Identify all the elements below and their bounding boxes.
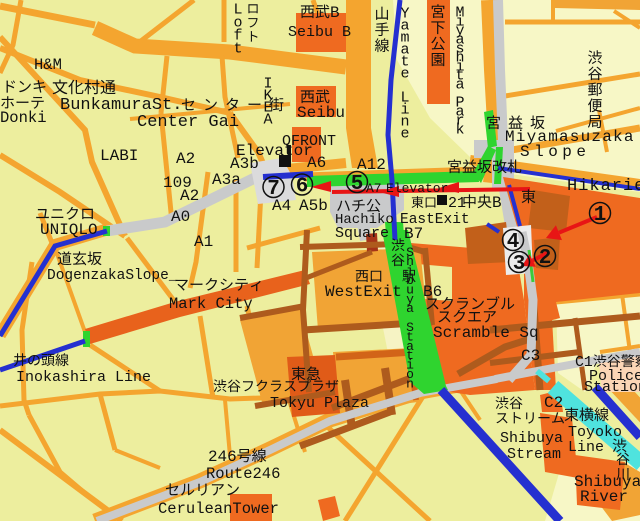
svg-text:DogenzakaSlope_: DogenzakaSlope_ <box>47 268 178 284</box>
svg-text:Center Gai: Center Gai <box>137 113 239 132</box>
svg-text:LABI: LABI <box>100 147 138 165</box>
svg-text:A6: A6 <box>307 154 326 172</box>
svg-text:21: 21 <box>448 195 466 212</box>
svg-text:A5b: A5b <box>299 197 328 215</box>
svg-text:7: 7 <box>267 178 280 201</box>
svg-text:B: B <box>492 194 502 212</box>
svg-text:Hikarie: Hikarie <box>567 177 640 196</box>
svg-text:A12: A12 <box>357 156 386 174</box>
svg-text:Inokashira Line: Inokashira Line <box>16 369 151 386</box>
svg-text:Donki: Donki <box>0 109 47 127</box>
svg-text:A1: A1 <box>194 233 213 251</box>
svg-text:Route246: Route246 <box>206 465 280 483</box>
svg-text:CeruleanTower: CeruleanTower <box>158 500 279 518</box>
svg-text:River: River <box>580 488 628 506</box>
svg-text:Square: Square <box>335 225 389 242</box>
svg-text:B7: B7 <box>404 225 423 243</box>
svg-text:6: 6 <box>296 176 309 199</box>
svg-text:Shibuya: Shibuya <box>500 430 563 447</box>
svg-text:Tokyu Plaza: Tokyu Plaza <box>270 395 369 412</box>
svg-text:A2: A2 <box>176 150 195 168</box>
svg-text:a: a <box>406 301 414 316</box>
svg-text:H&M: H&M <box>34 56 62 74</box>
svg-text:B: B <box>330 4 340 22</box>
svg-text:t: t <box>233 40 242 57</box>
svg-text:Scramble Sq: Scramble Sq <box>433 324 539 342</box>
svg-text:Mark City: Mark City <box>169 295 253 313</box>
svg-text:e: e <box>400 65 409 82</box>
svg-text:246: 246 <box>208 448 237 466</box>
svg-text:Elevator: Elevator <box>386 181 448 196</box>
svg-text:Line: Line <box>568 439 604 456</box>
svg-text:a: a <box>455 76 464 93</box>
svg-text:n: n <box>406 376 414 391</box>
svg-text:5: 5 <box>351 173 364 196</box>
svg-text:2: 2 <box>539 247 552 270</box>
svg-text:Stream: Stream <box>507 446 561 463</box>
svg-text:QFRONT: QFRONT <box>282 133 336 150</box>
svg-text:C3: C3 <box>521 347 540 365</box>
svg-text:Slope: Slope <box>520 143 591 161</box>
svg-text:Station: Station <box>584 379 640 396</box>
svg-text:A: A <box>263 111 272 128</box>
svg-text:WestExit: WestExit <box>325 283 402 301</box>
svg-text:3: 3 <box>513 253 526 276</box>
svg-text:Seibu B: Seibu B <box>288 24 351 41</box>
svg-text:4: 4 <box>507 231 520 254</box>
svg-text:1: 1 <box>594 204 607 227</box>
svg-text:UNIQLO: UNIQLO <box>40 221 98 239</box>
svg-text:k: k <box>455 121 464 138</box>
svg-text:B6: B6 <box>423 283 442 301</box>
svg-text:C2: C2 <box>544 394 563 412</box>
svg-text:e: e <box>400 125 409 142</box>
svg-text:Seibu: Seibu <box>297 104 345 122</box>
svg-text:A3a: A3a <box>212 171 241 189</box>
svg-text:A2: A2 <box>180 187 199 205</box>
svg-text:A7: A7 <box>366 181 382 196</box>
svg-text:A0: A0 <box>171 208 190 226</box>
